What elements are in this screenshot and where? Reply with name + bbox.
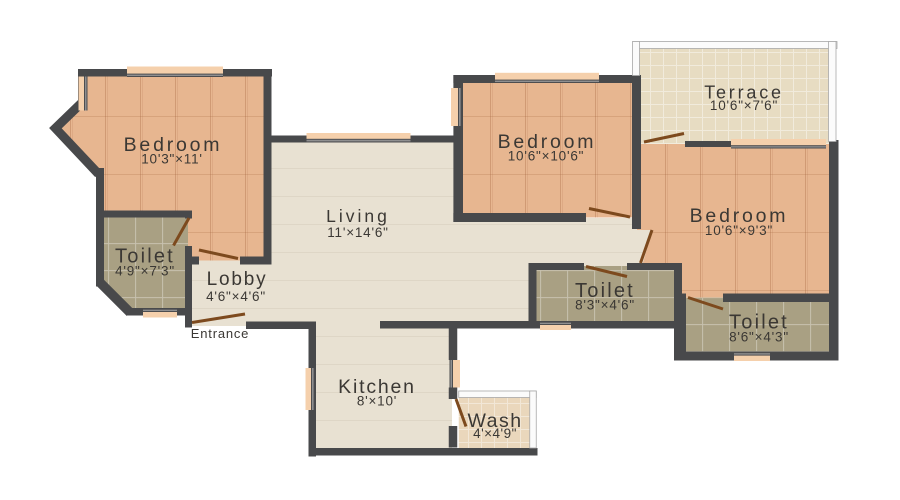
svg-text:10'6"×7'6": 10'6"×7'6" (710, 98, 778, 113)
svg-text:8'×10': 8'×10' (357, 394, 397, 409)
svg-text:10'6"×9'3": 10'6"×9'3" (705, 223, 773, 238)
svg-text:Lobby: Lobby (207, 269, 268, 290)
svg-text:4'6"×4'6": 4'6"×4'6" (206, 289, 266, 304)
svg-text:11'×14'6": 11'×14'6" (327, 225, 389, 240)
svg-text:4'9"×7'3": 4'9"×7'3" (115, 264, 175, 279)
svg-text:Living: Living (326, 206, 390, 226)
svg-text:10'3"×11': 10'3"×11' (141, 152, 203, 167)
svg-text:Entrance: Entrance (191, 326, 249, 341)
svg-text:8'3"×4'6": 8'3"×4'6" (575, 298, 635, 313)
svg-text:10'6"×10'6": 10'6"×10'6" (508, 149, 584, 164)
svg-text:4'×4'9": 4'×4'9" (473, 426, 517, 441)
svg-text:8'6"×4'3": 8'6"×4'3" (729, 330, 789, 345)
